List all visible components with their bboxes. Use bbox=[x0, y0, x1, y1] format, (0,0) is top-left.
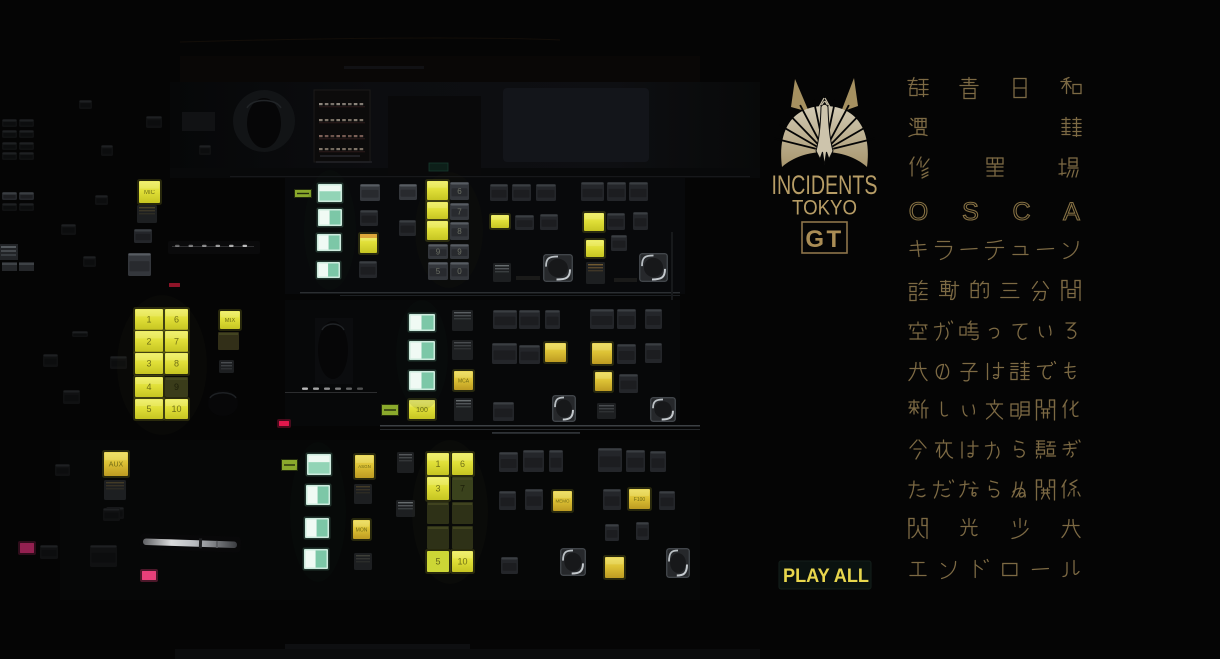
svg-text:6: 6 bbox=[174, 315, 179, 325]
svg-text:7: 7 bbox=[174, 337, 179, 347]
svg-text:MON: MON bbox=[356, 527, 368, 533]
svg-text:4: 4 bbox=[146, 382, 151, 392]
svg-text:F100: F100 bbox=[634, 497, 646, 503]
svg-text:7: 7 bbox=[457, 208, 462, 217]
svg-text:MCA: MCA bbox=[458, 378, 470, 384]
svg-text:0: 0 bbox=[457, 267, 462, 276]
svg-text:8: 8 bbox=[457, 227, 462, 236]
svg-text:C: C bbox=[1012, 198, 1030, 226]
svg-text:5: 5 bbox=[436, 267, 441, 276]
svg-text:MIX: MIX bbox=[225, 318, 236, 324]
svg-text:A: A bbox=[1063, 198, 1080, 226]
svg-text:6: 6 bbox=[460, 459, 465, 469]
svg-text:3: 3 bbox=[435, 484, 440, 494]
svg-text:MIC: MIC bbox=[144, 190, 156, 196]
svg-text:O: O bbox=[909, 198, 928, 226]
svg-text:7: 7 bbox=[460, 484, 465, 494]
svg-text:TOKYO: TOKYO bbox=[792, 196, 857, 220]
svg-text:9: 9 bbox=[436, 248, 441, 257]
svg-text:1: 1 bbox=[146, 315, 151, 325]
svg-text:3: 3 bbox=[146, 359, 151, 369]
svg-text:9: 9 bbox=[174, 382, 179, 392]
svg-text:2: 2 bbox=[146, 337, 151, 347]
svg-text:8: 8 bbox=[174, 359, 179, 369]
svg-text:10: 10 bbox=[171, 404, 181, 414]
svg-text:PLAY ALL: PLAY ALL bbox=[783, 566, 869, 587]
svg-text:1: 1 bbox=[435, 459, 440, 469]
svg-text:MEMO: MEMO bbox=[556, 499, 570, 504]
svg-text:GT: GT bbox=[805, 226, 843, 253]
svg-text:AUX: AUX bbox=[109, 462, 124, 469]
svg-text:5: 5 bbox=[435, 557, 440, 567]
svg-text:ASGN: ASGN bbox=[358, 464, 371, 469]
svg-text:10: 10 bbox=[457, 557, 467, 567]
svg-text:S: S bbox=[962, 198, 979, 226]
svg-text:5: 5 bbox=[146, 404, 151, 414]
svg-text:9: 9 bbox=[457, 248, 462, 257]
svg-text:6: 6 bbox=[457, 187, 462, 196]
